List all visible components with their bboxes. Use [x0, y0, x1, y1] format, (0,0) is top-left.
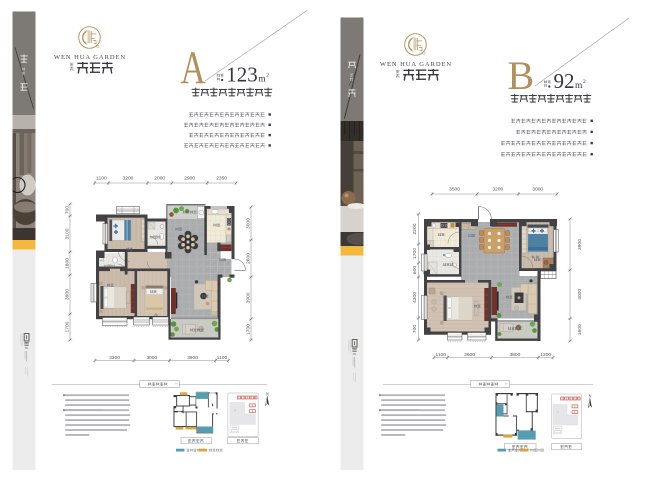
svg-text:1600: 1600 [577, 324, 583, 335]
svg-text:1700: 1700 [412, 248, 418, 259]
svg-text:2: 2 [266, 73, 269, 79]
svg-text:700: 700 [412, 325, 418, 333]
svg-text:1700: 1700 [245, 324, 251, 335]
svg-text:2600: 2600 [245, 253, 251, 264]
svg-text:m: m [575, 81, 583, 91]
svg-text:4000: 4000 [577, 289, 583, 300]
svg-text:3900: 3900 [187, 355, 198, 361]
svg-text:3000: 3000 [146, 355, 157, 361]
svg-text:3300: 3300 [109, 355, 120, 361]
svg-text:m: m [258, 75, 266, 85]
svg-text:3100: 3100 [65, 228, 71, 239]
svg-text:3000: 3000 [245, 218, 251, 229]
svg-text:1100: 1100 [96, 176, 107, 182]
svg-text:3800: 3800 [509, 352, 520, 358]
svg-text:WEN HUA GARDEN: WEN HUA GARDEN [380, 61, 452, 68]
svg-text:N: N [589, 394, 592, 399]
svg-text:3900: 3900 [245, 292, 251, 303]
svg-text:1200: 1200 [540, 352, 551, 358]
svg-text:B: B [508, 53, 535, 98]
svg-text:700: 700 [65, 206, 71, 214]
svg-text:2350: 2350 [216, 176, 227, 182]
svg-text:WEN HUA GARDEN: WEN HUA GARDEN [54, 54, 126, 61]
svg-text:600: 600 [412, 266, 418, 274]
svg-text:2200: 2200 [412, 223, 418, 234]
svg-text:3200: 3200 [123, 176, 134, 182]
svg-text:3200: 3200 [492, 187, 503, 193]
svg-text:3900: 3900 [577, 239, 583, 250]
svg-text:2900: 2900 [184, 176, 195, 182]
svg-text:A: A [181, 41, 206, 93]
svg-text:3500: 3500 [449, 187, 460, 193]
svg-text:1700: 1700 [65, 321, 71, 332]
svg-text:1800: 1800 [65, 258, 71, 269]
svg-text:3600: 3600 [464, 352, 475, 358]
svg-text:1100: 1100 [217, 355, 228, 361]
svg-text:1100: 1100 [435, 352, 446, 358]
svg-text:N: N [266, 392, 269, 397]
svg-text:123: 123 [226, 63, 258, 87]
svg-text:3900: 3900 [65, 289, 71, 300]
svg-text:3000: 3000 [532, 187, 543, 193]
svg-text:2: 2 [583, 79, 586, 85]
svg-text:92: 92 [554, 69, 575, 93]
svg-text:2000: 2000 [154, 176, 165, 182]
svg-text:4300: 4300 [412, 292, 418, 303]
